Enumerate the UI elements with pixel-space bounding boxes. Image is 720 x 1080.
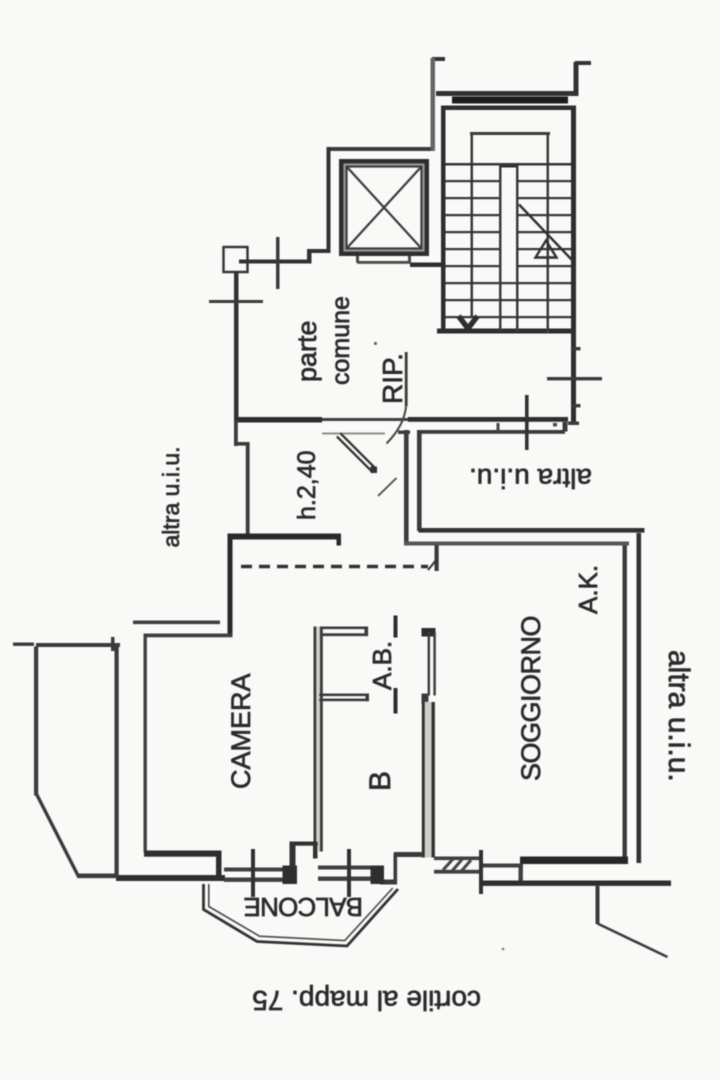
svg-text:B: B [364,771,397,791]
svg-text:altra u.i.u.: altra u.i.u. [158,447,184,548]
svg-text:RIP.: RIP. [377,353,408,404]
svg-text:A.B.: A.B. [367,641,397,690]
svg-text:altra u.i.u.: altra u.i.u. [469,463,592,494]
svg-text:altra u.i.u.: altra u.i.u. [662,650,695,782]
svg-text:cortile al mapp. 75: cortile al mapp. 75 [252,985,481,1016]
svg-text:SOGGIORNO: SOGGIORNO [516,616,546,781]
svg-text:A.K.: A.K. [573,565,603,614]
svg-text:parte: parte [292,320,322,382]
svg-text:CAMERA: CAMERA [226,673,256,789]
svg-text:h.2,40: h.2,40 [293,450,321,520]
svg-text:BALCONE: BALCONE [244,892,363,922]
svg-text:comune: comune [327,296,355,385]
